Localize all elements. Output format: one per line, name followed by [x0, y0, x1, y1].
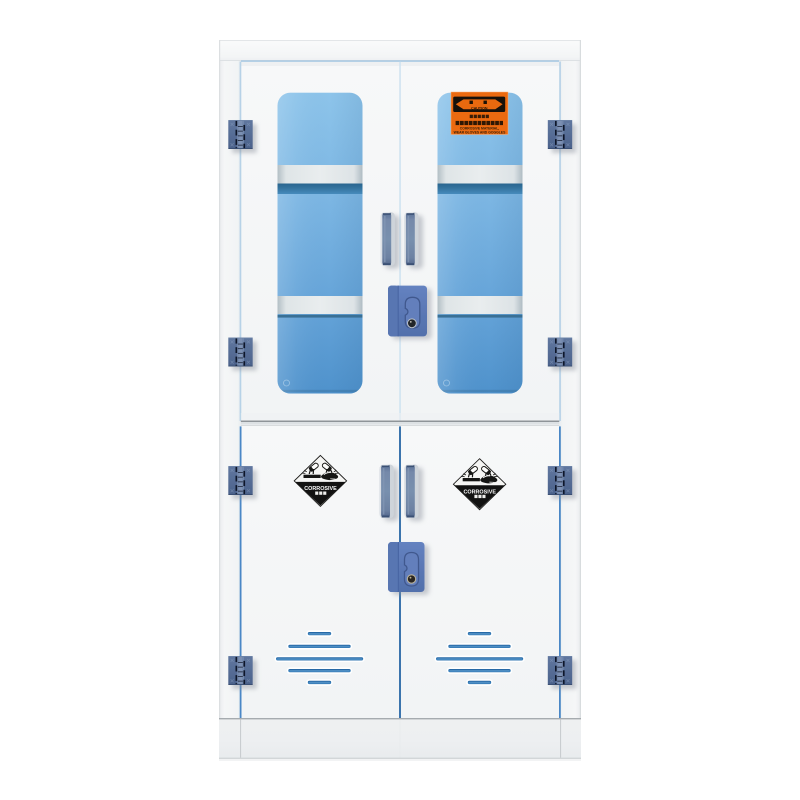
svg-text:CORROSIVE: CORROSIVE	[304, 486, 337, 492]
svg-text:WEAR GLOVES AND GOGGLES: WEAR GLOVES AND GOGGLES	[454, 131, 506, 135]
svg-text:CAUTION: CAUTION	[471, 106, 488, 110]
